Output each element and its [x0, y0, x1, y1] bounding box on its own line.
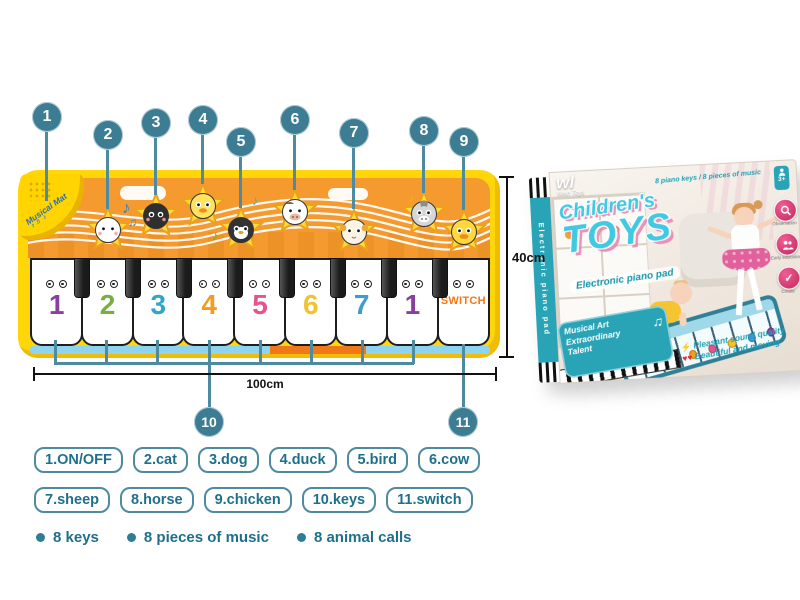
width-dimension-label: 100cm: [33, 377, 497, 391]
bracket-tick: [208, 340, 211, 364]
bolt-icon: ⚡: [680, 341, 692, 353]
bracket-tick: [54, 340, 57, 364]
bullet-icon: [127, 533, 136, 542]
piano-pattern: [529, 177, 550, 198]
legend-item-chicken: 9.chicken: [204, 487, 292, 513]
legend-item-cow: 6.cow: [418, 447, 480, 473]
bullet-icon: [297, 533, 306, 542]
dimension-cap: [499, 176, 514, 178]
callout-5-bird: 5: [226, 127, 256, 157]
music-note-icon: ♪: [212, 228, 219, 243]
black-key: [74, 258, 90, 298]
music-note-icon: ♫: [128, 215, 137, 229]
feature-list: 8 keys 8 pieces of music 8 animal calls: [36, 529, 412, 546]
callout-8-horse: 8: [409, 116, 439, 146]
height-dimension-line: [506, 176, 508, 358]
callout-6-cow: 6: [280, 105, 310, 135]
feature-music: 8 pieces of music: [127, 529, 269, 546]
callout-line-6: [293, 134, 296, 190]
black-key: [125, 258, 141, 298]
star-animal-chicken: [440, 206, 488, 254]
callout-7-sheep: 7: [339, 118, 369, 148]
brand-logo: wl Wein Toys: [556, 173, 585, 197]
bracket-bar: [54, 362, 414, 365]
mat-orange-strip: [270, 346, 366, 354]
legend-item-switch: 11.switch: [386, 487, 472, 513]
bracket-tick: [412, 340, 415, 364]
speaker-holes: [28, 181, 54, 201]
feature-animal-calls: 8 animal calls: [297, 529, 412, 546]
legend-item-duck: 4.duck: [269, 447, 337, 473]
callout-9-chicken: 9: [449, 127, 479, 157]
music-note-icon: ♫: [652, 313, 663, 331]
callout-line-2: [106, 149, 109, 209]
check-icon: ✓: [784, 271, 794, 284]
switch-label: SWITCH: [439, 296, 488, 307]
bracket-tick: [361, 340, 364, 364]
callout-line-4: [201, 134, 204, 184]
badge-create: ✓: [777, 266, 800, 290]
callout-line-11: [462, 344, 465, 408]
logo-text: wl: [556, 173, 585, 191]
music-note-icon: ♪: [408, 190, 415, 205]
bracket-tick: [310, 340, 313, 364]
feature-keys: 8 keys: [36, 529, 99, 546]
width-dimension-line: [33, 373, 497, 375]
legend-item-dog: 3.dog: [198, 447, 259, 473]
legend-item-keys: 10.keys: [302, 487, 376, 513]
callout-line-8: [422, 145, 425, 193]
black-key: [432, 258, 448, 298]
magnifier-icon: [779, 204, 792, 217]
black-key: [227, 258, 243, 298]
black-key: [279, 258, 295, 298]
bracket-tick: [105, 340, 108, 364]
callout-line-5: [239, 156, 242, 208]
callout-1-onoff: 1: [32, 102, 62, 132]
callout-line-3: [154, 137, 157, 195]
height-dimension-label: 40cm: [512, 250, 545, 265]
callout-11-switch: 11: [448, 407, 478, 437]
dimension-cap: [499, 356, 514, 358]
legend-item-onoff: 1.ON/OFF: [34, 447, 123, 473]
music-note-icon: ♪: [252, 193, 259, 208]
age-badge: 3+: [774, 165, 790, 190]
star-animal-sheep: [330, 206, 378, 254]
people-icon: [781, 238, 794, 251]
legend-item-bird: 5.bird: [347, 447, 408, 473]
box-front: wl Wein Toys 8 piano keys / 8 pieces of …: [549, 159, 800, 384]
star-animal-cow: [271, 186, 319, 234]
black-key: [381, 258, 397, 298]
legend-item-cat: 2.cat: [133, 447, 188, 473]
bracket-tick: [259, 340, 262, 364]
callout-3-dog: 3: [141, 108, 171, 138]
bullet-icon: [36, 533, 45, 542]
bracket-tick: [156, 340, 159, 364]
black-key: [176, 258, 192, 298]
keyboard: 1 2 3 4 5 6 7 1 SWITCH: [30, 258, 490, 346]
star-animal-dog: [132, 190, 180, 238]
product-box: Electronic piano pad wl Wein Toys 8 pian…: [529, 159, 800, 387]
badge-observation: [773, 198, 797, 222]
piano-pattern: [539, 362, 560, 383]
black-key: [330, 258, 346, 298]
star-animal-bird: [217, 204, 265, 252]
callout-line-7: [352, 147, 355, 209]
legend-item-horse: 8.horse: [120, 487, 194, 513]
legend-row-1: 1.ON/OFF 2.cat 3.dog 4.duck 5.bird 6.cow: [34, 447, 480, 473]
callout-line-1: [45, 131, 48, 201]
product-sheet: Musical Mat ♪ ♬ ♪ 1 2 3 4 5 6 7 1 SWITCH…: [0, 0, 800, 600]
box-title: Children's TOYS Electronic piano pad: [557, 188, 681, 295]
heart-icon: ♥♥: [682, 352, 694, 364]
legend-item-sheep: 7.sheep: [34, 487, 110, 513]
age-badge-text: 3+: [778, 176, 786, 183]
callout-line-9: [462, 156, 465, 210]
badge-early-education: [775, 232, 799, 256]
callout-2-cat: 2: [93, 120, 123, 150]
callout-4-duck: 4: [188, 105, 218, 135]
legend-row-2: 7.sheep 8.horse 9.chicken 10.keys 11.swi…: [34, 487, 473, 513]
callout-10-keys: 10: [194, 407, 224, 437]
